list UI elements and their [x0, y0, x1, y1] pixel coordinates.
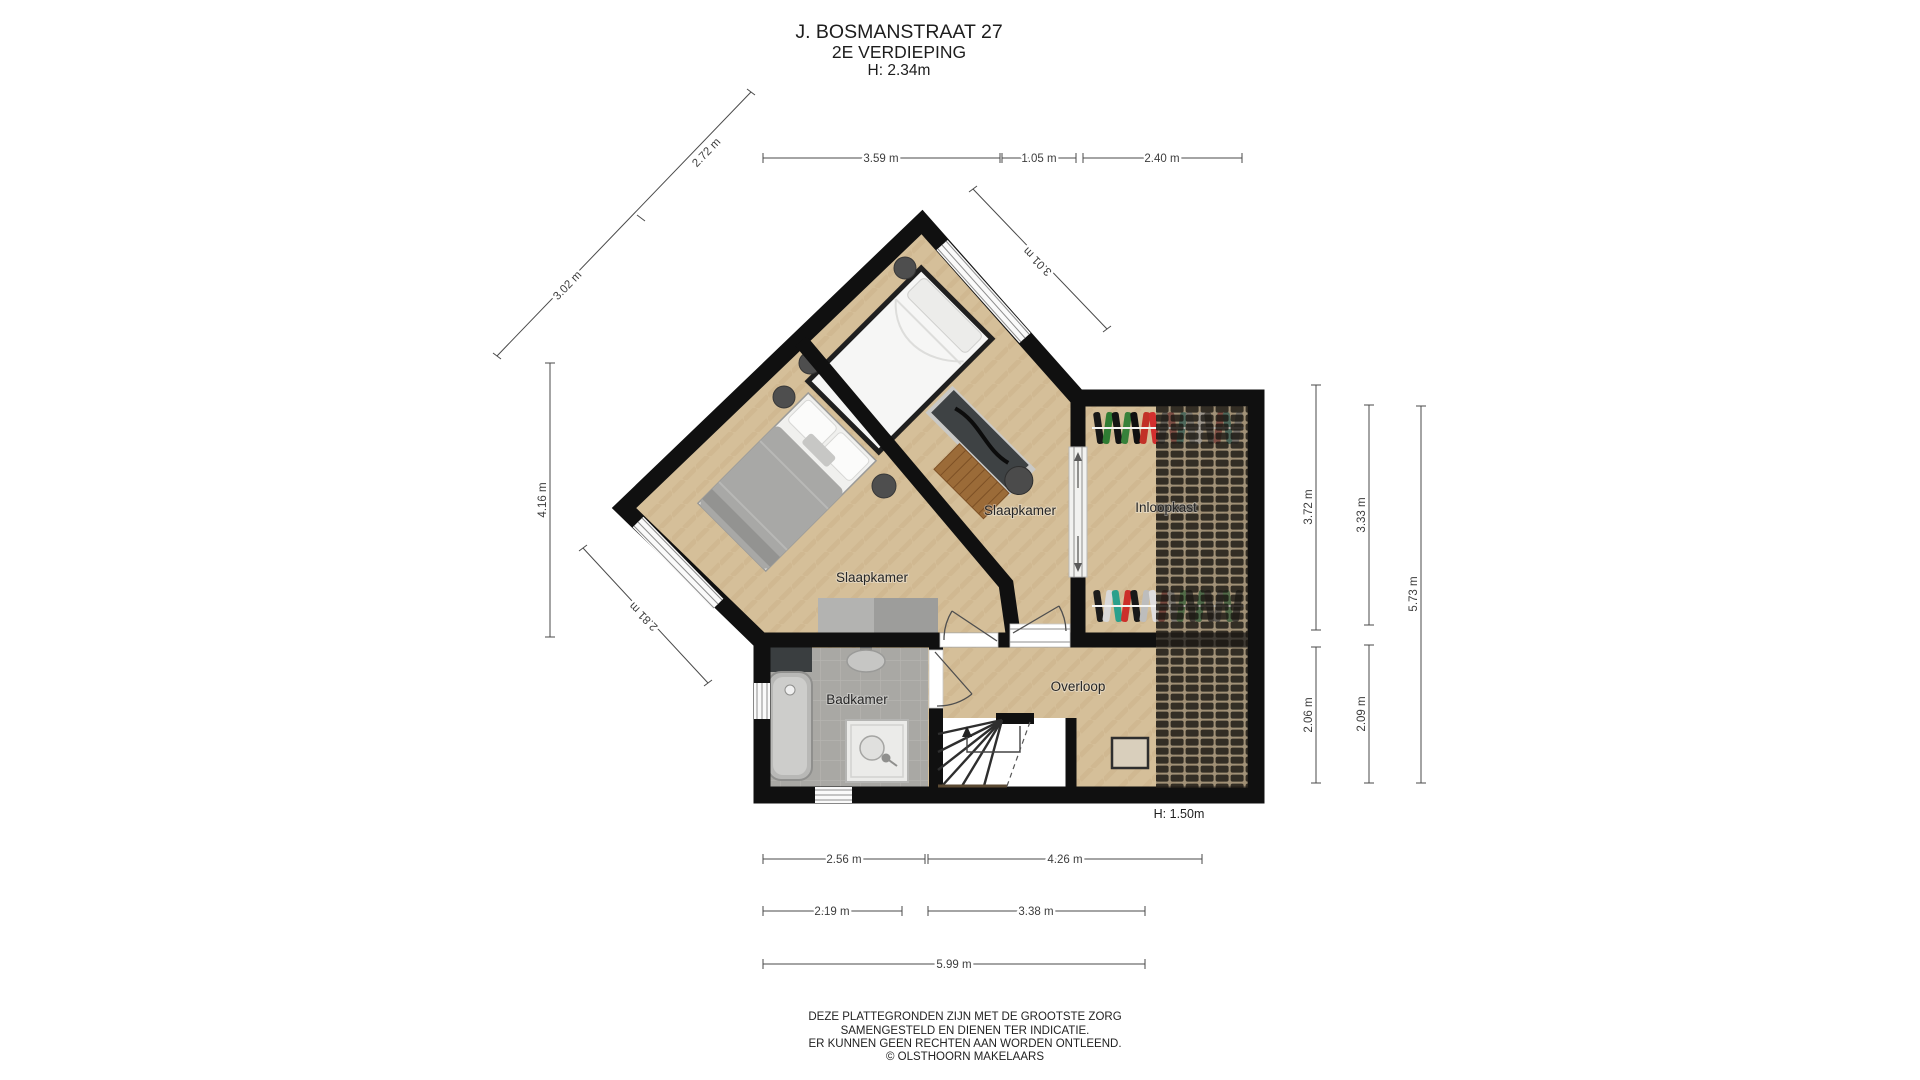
title-floor: 2E VERDIEPING	[832, 42, 966, 62]
doormat	[1112, 738, 1148, 768]
dimension-top-row: 3.59 m 1.05 m 2.40 m	[763, 153, 1242, 165]
room-label-slaapkamer-left: Slaapkamer	[836, 570, 909, 585]
bathtub	[768, 672, 812, 780]
dim-label: 3.38 m	[1018, 906, 1053, 918]
dim-label: 3.59 m	[863, 153, 898, 165]
dim-label: 3.33 m	[1356, 497, 1368, 532]
dim-label: 2.72 m	[690, 136, 723, 170]
dimension-right-verticals: 3.72 m 3.33 m 5.73 m 2.06 m 2.09 m	[1303, 385, 1426, 783]
room-label-overloop: Overloop	[1051, 679, 1106, 694]
footer-line: SAMENGESTELD EN DIENEN TER INDICATIE.	[841, 1025, 1090, 1037]
stairwell-floor	[938, 718, 1067, 788]
dim-label: 3.02 m	[551, 269, 584, 303]
dim-label: 5.73 m	[1408, 576, 1420, 611]
pouf	[894, 257, 916, 279]
room-label-slaapkamer-right: Slaapkamer	[984, 503, 1057, 518]
sliding-door-closet	[1069, 447, 1087, 577]
footer-line: DEZE PLATTEGRONDEN ZIJN MET DE GROOTSTE …	[808, 1011, 1121, 1023]
dim-label: 1.05 m	[1021, 153, 1056, 165]
low-height-note: H: 1.50m	[1154, 807, 1205, 821]
dim-label: 2.19 m	[814, 906, 849, 918]
room-label-badkamer: Badkamer	[826, 692, 888, 707]
footer-disclaimer: DEZE PLATTEGRONDEN ZIJN MET DE GROOTSTE …	[808, 1011, 1121, 1063]
footer-line: © OLSTHOORN MAKELAARS	[886, 1051, 1044, 1063]
pouf	[773, 386, 795, 408]
dim-label: 3.72 m	[1303, 489, 1315, 524]
dim-label: 2.06 m	[1303, 697, 1315, 732]
roof-slope-hatch	[1156, 406, 1248, 788]
dim-label: 4.26 m	[1047, 854, 1082, 866]
room-label-inloopkast: Inloopkast	[1135, 500, 1197, 515]
floor-plan-canvas: J. BOSMANSTRAAT 27 2E VERDIEPING H: 2.34…	[0, 0, 1920, 1080]
dim-label: 4.16 m	[537, 482, 549, 517]
shower	[846, 720, 908, 782]
dim-label: 2.40 m	[1144, 153, 1179, 165]
dimension-diagonal-upper-left: 3.02 m 2.72 m	[493, 89, 755, 359]
pouf	[872, 474, 896, 498]
footer-line: ER KUNNEN GEEN RECHTEN AAN WORDEN ONTLEE…	[808, 1038, 1121, 1050]
window-bathroom-bottom	[815, 787, 852, 803]
dimension-left-vertical: 4.16 m	[537, 363, 555, 637]
dim-label: 2.56 m	[826, 854, 861, 866]
dim-label: 5.99 m	[936, 959, 971, 971]
dimension-bottom-rows: 2.56 m 4.26 m 2.19 m 3.38 m 5.99 m	[763, 854, 1202, 971]
dim-label: 2.81 m	[627, 599, 660, 632]
dresser	[818, 598, 938, 638]
title-block: J. BOSMANSTRAAT 27 2E VERDIEPING H: 2.34…	[795, 21, 1002, 79]
title-address: J. BOSMANSTRAAT 27	[795, 21, 1002, 43]
dim-label: 2.09 m	[1356, 696, 1368, 731]
window-bathroom-left	[754, 683, 770, 719]
title-ceiling-height: H: 2.34m	[868, 62, 931, 79]
dim-label: 3.01 m	[1021, 244, 1054, 277]
